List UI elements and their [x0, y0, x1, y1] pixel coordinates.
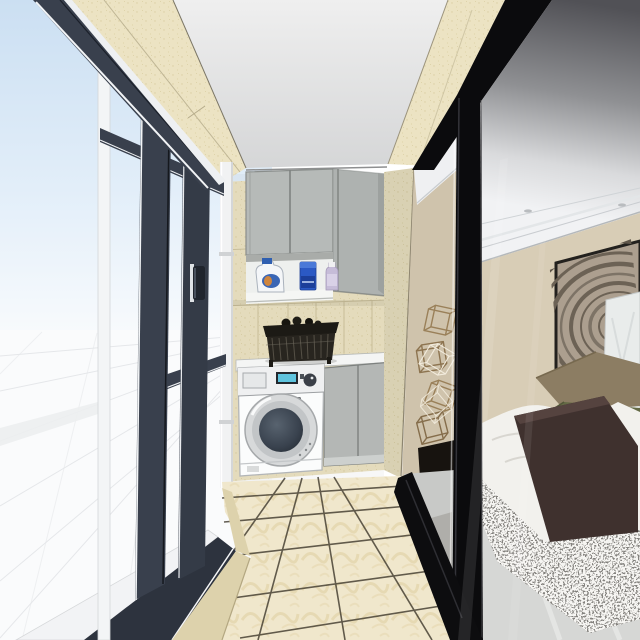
detergent-drawer [243, 373, 266, 388]
jug-cap [262, 258, 272, 264]
washer-display [278, 374, 296, 382]
interior-3d-scene [0, 0, 640, 640]
washer-button [300, 374, 304, 379]
open-shelf [246, 252, 338, 304]
softener-cap [329, 262, 335, 267]
washer-knob [304, 374, 317, 387]
window-handle [190, 264, 205, 302]
washing-machine [238, 364, 324, 476]
drain-pipe [219, 162, 234, 488]
front-sash-stile-white [98, 64, 110, 640]
recessed-light [524, 209, 532, 212]
washer-door-glass [259, 408, 303, 452]
softener-label [327, 274, 337, 286]
base-cabinet [324, 362, 392, 466]
blue-detergent-bottle [300, 262, 316, 290]
render-viewport [0, 0, 640, 640]
washer-door [245, 394, 317, 466]
recessed-light [618, 203, 626, 206]
